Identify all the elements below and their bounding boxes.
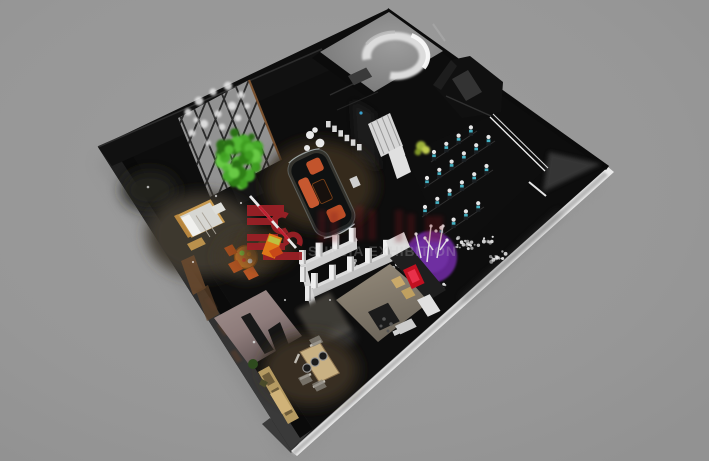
svg-text:SUNJIA EXHIBITION: SUNJIA EXHIBITION bbox=[308, 243, 456, 259]
